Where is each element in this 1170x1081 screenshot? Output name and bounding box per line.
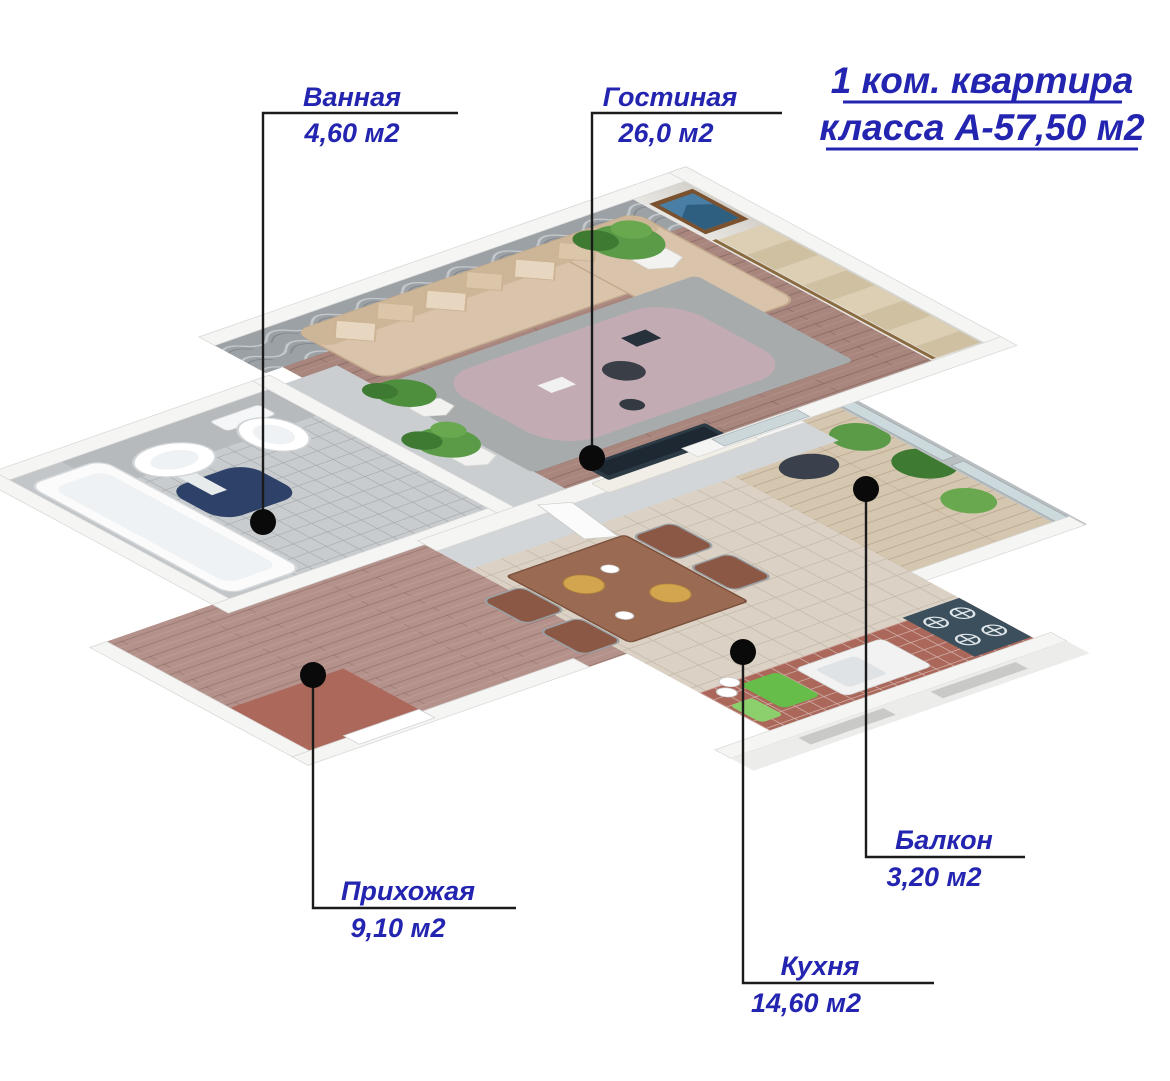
marker-dot-living — [579, 445, 605, 471]
room-label-hallway: Прихожая — [341, 876, 475, 906]
room-area-living: 26,0 м2 — [617, 118, 713, 148]
room-label-kitchen: Кухня — [781, 951, 860, 981]
marker-dot-balcony — [853, 476, 879, 502]
room-label-bathroom: Ванная — [303, 82, 401, 112]
room-label-balcony: Балкон — [895, 825, 993, 855]
room-area-bathroom: 4,60 м2 — [303, 118, 399, 148]
room-area-kitchen: 14,60 м2 — [751, 988, 861, 1018]
floor-plan-render — [0, 167, 1170, 863]
floorplan-canvas: Ванная 4,60 м2 Гостиная 26,0 м2 Прихожая… — [0, 0, 1170, 1081]
plan-title-line2: класса А-57,50 м2 — [819, 107, 1145, 148]
floorplan-page: Ванная 4,60 м2 Гостиная 26,0 м2 Прихожая… — [0, 0, 1170, 1081]
room-area-hallway: 9,10 м2 — [350, 913, 445, 943]
plan-title-line1: 1 ком. квартира — [831, 60, 1134, 101]
room-label-living: Гостиная — [603, 82, 738, 112]
plan-title: 1 ком. квартира класса А-57,50 м2 — [819, 60, 1145, 149]
marker-dot-bathroom — [250, 509, 276, 535]
marker-dot-kitchen — [730, 639, 756, 665]
marker-dot-hallway — [300, 662, 326, 688]
room-area-balcony: 3,20 м2 — [886, 862, 981, 892]
